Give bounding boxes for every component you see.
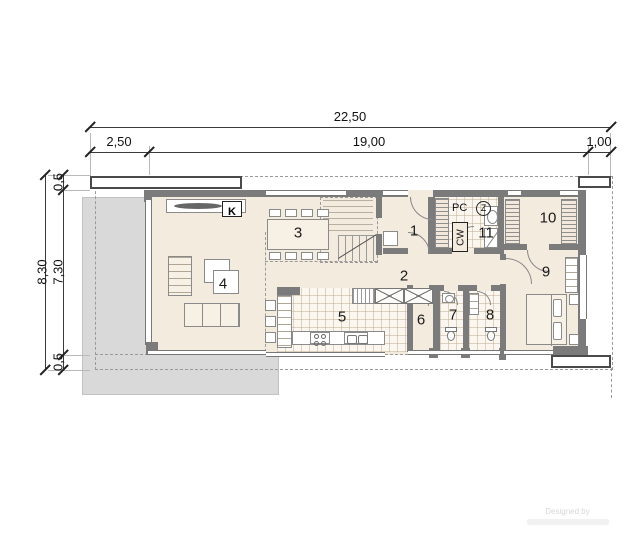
dim-line-segments: [90, 152, 611, 153]
kitchen-tall-cabinets: [277, 295, 292, 348]
fireplace-k-box: K: [222, 201, 242, 217]
closet-hatch: [435, 198, 449, 248]
roof-overhang-tr: [578, 176, 611, 188]
room-label-9: 9: [542, 264, 550, 281]
room-label-4: 4: [219, 276, 227, 293]
window-bedroom-right: [579, 255, 587, 319]
closet-hatch: [505, 199, 520, 244]
bed: [526, 294, 567, 345]
sink-bowl: [347, 335, 357, 344]
label-z-circle: Z: [476, 201, 491, 216]
dim-top-seg-3: 1,00: [586, 134, 611, 149]
wall-pantry-wc: [433, 291, 440, 352]
nightstand: [569, 294, 579, 305]
dim-left-total: 8,30: [35, 259, 50, 284]
room-label-3: 3: [294, 225, 302, 242]
dining-chair: [269, 252, 281, 260]
fireplace-label: K: [228, 206, 236, 218]
wall-corridor-top: [474, 248, 500, 254]
dining-chair: [285, 252, 297, 260]
shelf-unit: [265, 316, 276, 327]
window-dining: [266, 190, 346, 196]
sink-bowl: [358, 335, 368, 344]
wall-kitchen-cap: [277, 287, 300, 295]
wall-corridor-bottom: [491, 285, 500, 291]
fireplace-hearth: [174, 203, 222, 209]
window-living-bottom: [148, 350, 266, 355]
toilet-bowl: [487, 331, 495, 341]
wall-hall-left: [376, 234, 382, 255]
room-label-1: 1: [410, 223, 418, 240]
dim-left-seg-2: 7,30: [51, 259, 66, 284]
washbasin: [442, 293, 455, 303]
window-hall: [383, 190, 408, 196]
dim-top-total: 22,50: [334, 109, 367, 124]
staircase-upper-steps: [323, 200, 373, 234]
room-label-11: 11: [478, 225, 494, 242]
basin-bowl: [445, 295, 454, 303]
dining-chair: [285, 209, 297, 217]
toilet-bowl: [447, 331, 455, 341]
window-kitchen-bottom: [266, 352, 385, 357]
window-top-small: [508, 190, 521, 196]
room-label-2: 2: [400, 268, 408, 285]
room-label-5: 5: [338, 309, 346, 326]
bed-headboard-line: [551, 295, 552, 346]
shelf-unit: [265, 332, 276, 343]
closet-hatch: [561, 199, 577, 244]
kitchen-counter: [292, 331, 385, 345]
hall-cabinet: [383, 231, 398, 246]
wardrobe-x: [375, 288, 404, 304]
window-living-left: [145, 200, 152, 345]
sofa: [184, 303, 240, 327]
dining-chair: [301, 252, 313, 260]
dim-top-seg-1: 2,50: [106, 134, 131, 149]
dim-line-total: [90, 127, 611, 128]
dim-top-seg-2: 19,00: [353, 134, 386, 149]
roof-overhang-tl: [90, 176, 242, 189]
bedroom-wardrobe: [565, 257, 578, 293]
label-cw: CW: [456, 225, 467, 251]
wall-corridor-top: [383, 248, 408, 254]
watermark-line1: Designed by: [505, 507, 630, 516]
roof-edge-dashed: [611, 368, 612, 398]
wall-wardrobe-bottom: [504, 244, 527, 250]
wardrobe-hanging: [352, 288, 375, 304]
room-label-6: 6: [417, 312, 425, 329]
dining-chair: [317, 209, 329, 217]
cooktop: [310, 332, 330, 344]
toilet: [485, 327, 497, 342]
window-wc-bottom: [408, 350, 500, 355]
room-label-7: 7: [449, 307, 457, 324]
toilet: [445, 327, 457, 342]
label-cw-box: CW: [452, 222, 468, 252]
window-bedroom-bottom: [504, 350, 553, 355]
dim-left-seg-3: 0,5: [51, 353, 66, 371]
entrance-door-gap: [408, 190, 433, 197]
roof-overhang-br: [551, 355, 611, 368]
room-label-8: 8: [486, 307, 494, 324]
wall-corridor-top: [435, 248, 452, 254]
pillow: [553, 299, 562, 317]
extension-line: [90, 133, 91, 176]
floor-plan: K: [0, 0, 638, 556]
room-label-10: 10: [540, 210, 557, 227]
window-top-right: [560, 190, 578, 196]
wall-wardrobe-bottom: [549, 244, 578, 250]
dining-chair: [317, 252, 329, 260]
dining-chair: [269, 209, 281, 217]
wardrobe-x: [404, 288, 433, 304]
label-pc: PC: [452, 202, 467, 214]
watermark-line2: [527, 519, 609, 525]
shelf-unit: [265, 300, 276, 311]
wall-hall-left: [376, 197, 382, 218]
nightstand: [569, 334, 579, 345]
bath-cabinet: [469, 293, 479, 315]
wall-bedroom-left: [500, 284, 506, 352]
dining-chair: [301, 209, 313, 217]
dim-left-seg-1: 0,5: [51, 173, 66, 191]
kitchen-sink: [344, 332, 368, 344]
armchair: [168, 256, 192, 296]
pillow: [553, 322, 562, 340]
